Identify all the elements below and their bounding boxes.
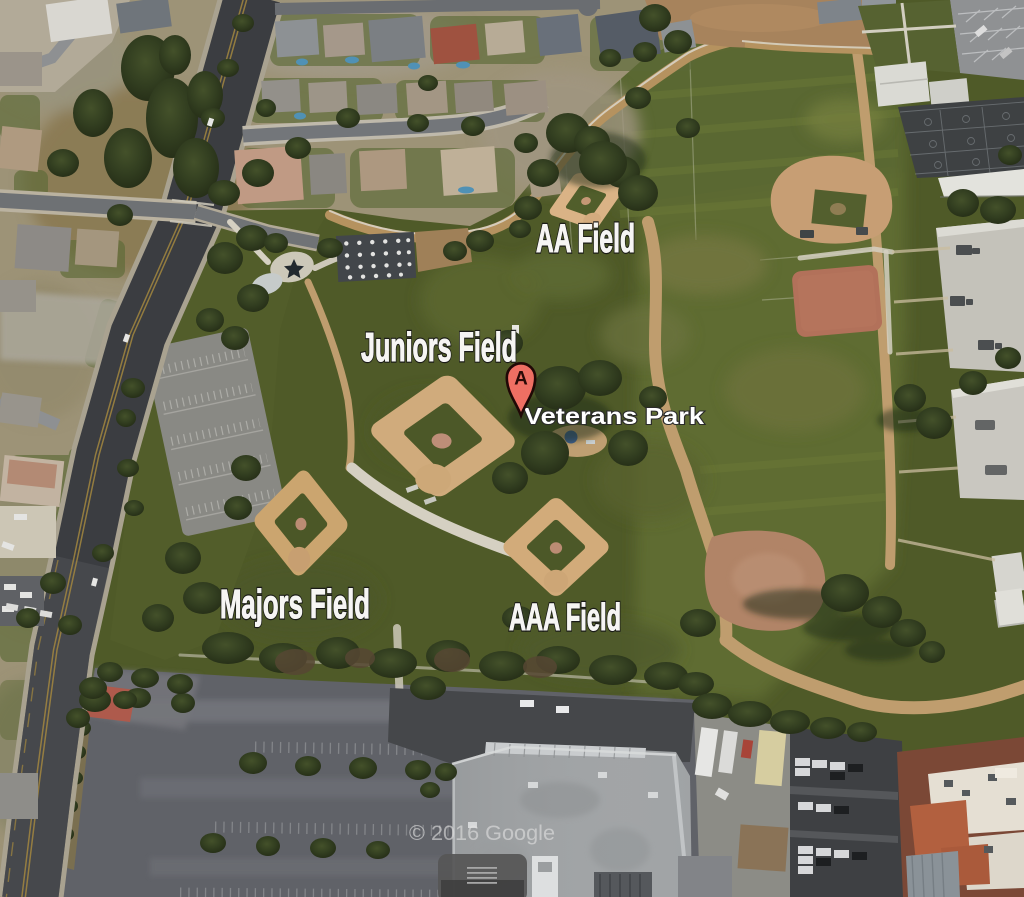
svg-text:Majors Field: Majors Field bbox=[220, 581, 370, 627]
svg-text:AA Field: AA Field bbox=[536, 217, 635, 261]
svg-text:Juniors Field: Juniors Field bbox=[361, 324, 517, 370]
svg-text:© 2016 Google: © 2016 Google bbox=[409, 822, 555, 845]
svg-text:AAA Field: AAA Field bbox=[509, 597, 621, 639]
svg-text:Veterans Park: Veterans Park bbox=[524, 403, 704, 429]
svg-text:A: A bbox=[514, 369, 528, 390]
